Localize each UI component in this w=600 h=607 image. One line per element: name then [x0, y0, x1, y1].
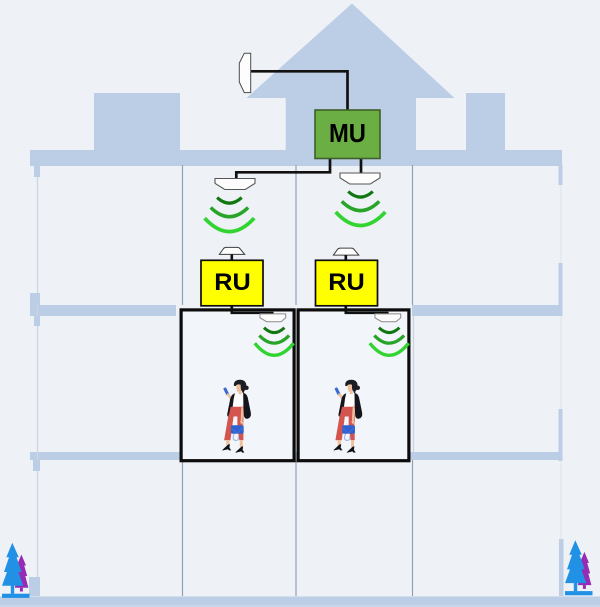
svg-text:RU: RU — [328, 269, 365, 296]
svg-text:RU: RU — [214, 269, 251, 296]
svg-text:MU: MU — [329, 120, 366, 148]
